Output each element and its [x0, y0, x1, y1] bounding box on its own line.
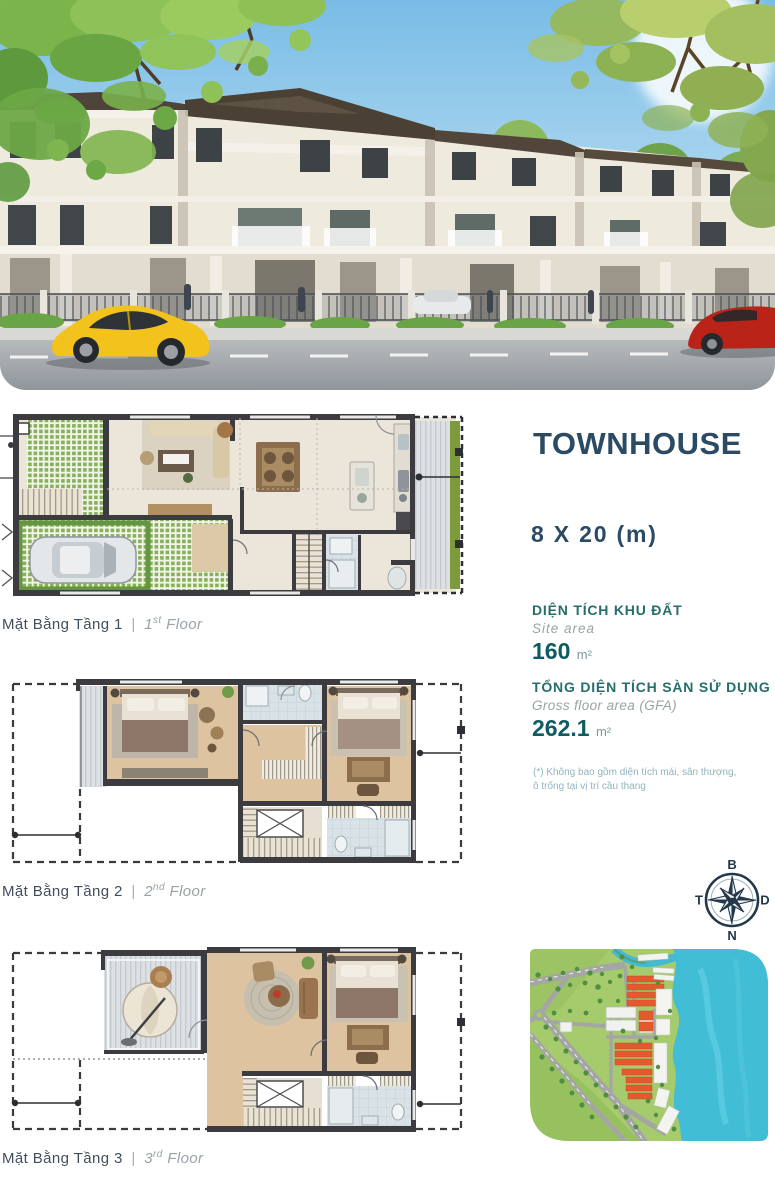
svg-text:T: T — [695, 893, 703, 908]
svg-text:B: B — [727, 860, 736, 872]
svg-text:D: D — [760, 893, 769, 908]
svg-text:N: N — [727, 928, 736, 940]
